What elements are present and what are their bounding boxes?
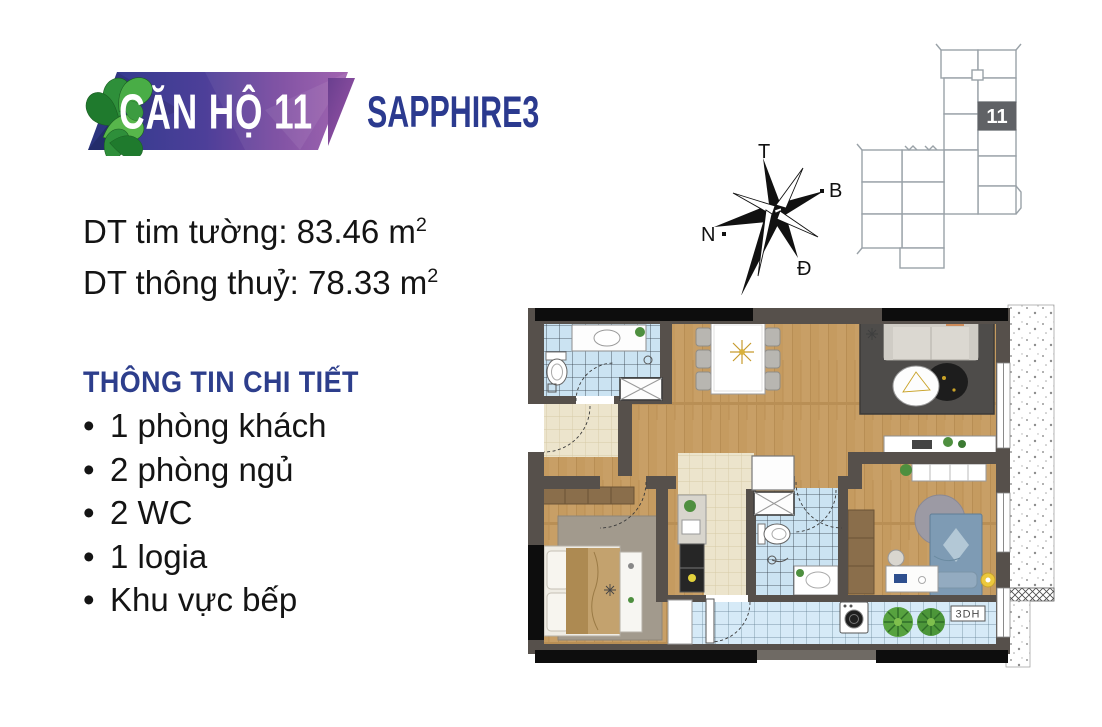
plant <box>883 607 913 637</box>
details-list: 1 phòng khách 2 phòng ngủ 2 WC 1 logia K… <box>83 404 327 622</box>
dining-area <box>696 322 780 394</box>
door-leaves <box>668 599 714 644</box>
pillow <box>547 551 569 589</box>
desk-chair <box>888 550 904 566</box>
plant <box>684 500 696 512</box>
list-item: 1 phòng khách <box>83 404 327 448</box>
pillow <box>935 572 977 588</box>
banner-title: CĂN HỘ 11 <box>127 67 305 157</box>
compass-label-d: Đ <box>797 258 811 280</box>
balcony-hatch <box>1006 305 1054 667</box>
sink <box>594 330 620 346</box>
viewer-3d-label: 3DH <box>951 606 985 621</box>
plant <box>635 327 645 337</box>
wc2-entry-floor <box>794 488 838 517</box>
wardrobe <box>848 510 874 594</box>
logia-sill <box>668 600 692 644</box>
brochure-page: CĂN HỘ 11 SAPPHIRE3 DT tim tường: 83.46 … <box>0 0 1102 727</box>
area-line-2: DT thông thuỷ: 78.33 m2 <box>83 254 438 305</box>
plant <box>917 608 945 636</box>
pillow <box>547 593 569 631</box>
washing-machine <box>840 602 868 633</box>
compass-label-n: N <box>701 224 715 246</box>
kitchen-sink <box>682 520 700 534</box>
key-plan: 11 <box>855 30 1037 278</box>
list-item: 2 phòng ngủ <box>83 448 327 492</box>
area-line-1: DT tim tường: 83.46 m2 <box>83 203 438 254</box>
window <box>997 493 1010 552</box>
list-item: 1 logia <box>83 535 327 579</box>
list-item: 2 WC <box>83 491 327 535</box>
kettle <box>688 574 696 582</box>
compass-label-b: B <box>829 180 842 202</box>
banner-slash <box>328 78 355 146</box>
window <box>997 363 1010 448</box>
toilet <box>758 524 790 544</box>
window <box>997 588 1010 637</box>
details-heading: THÔNG TIN CHI TIẾT <box>83 366 359 400</box>
list-item: Khu vực bếp <box>83 578 327 622</box>
toilet <box>546 352 567 385</box>
laptop <box>894 574 907 583</box>
tv-console <box>884 436 996 453</box>
kitchen <box>678 495 706 592</box>
entry-door-gap <box>528 404 544 452</box>
banner-subtitle: SAPPHIRE3 <box>367 84 539 143</box>
dresser <box>912 464 986 481</box>
compass-rose-icon: T B N Đ <box>690 140 850 295</box>
area-info: DT tim tường: 83.46 m2 DT thông thuỷ: 78… <box>83 203 438 305</box>
banner: CĂN HỘ 11 SAPPHIRE3 <box>85 70 555 156</box>
entry-floor <box>540 400 622 457</box>
chandelier-icon <box>730 340 754 364</box>
key-plan-unit-label: 11 <box>986 106 1007 128</box>
floor-lamp-icon <box>981 573 995 587</box>
key-plan-unit-11: 11 <box>978 102 1016 130</box>
plant <box>900 464 912 476</box>
door-leaf <box>706 599 714 643</box>
dining-table <box>711 322 765 394</box>
svg-text:3DH: 3DH <box>955 609 980 621</box>
sink-counter <box>794 566 838 595</box>
floor-plan: 3DH <box>524 298 1064 670</box>
compass-label-t: T <box>758 141 770 163</box>
